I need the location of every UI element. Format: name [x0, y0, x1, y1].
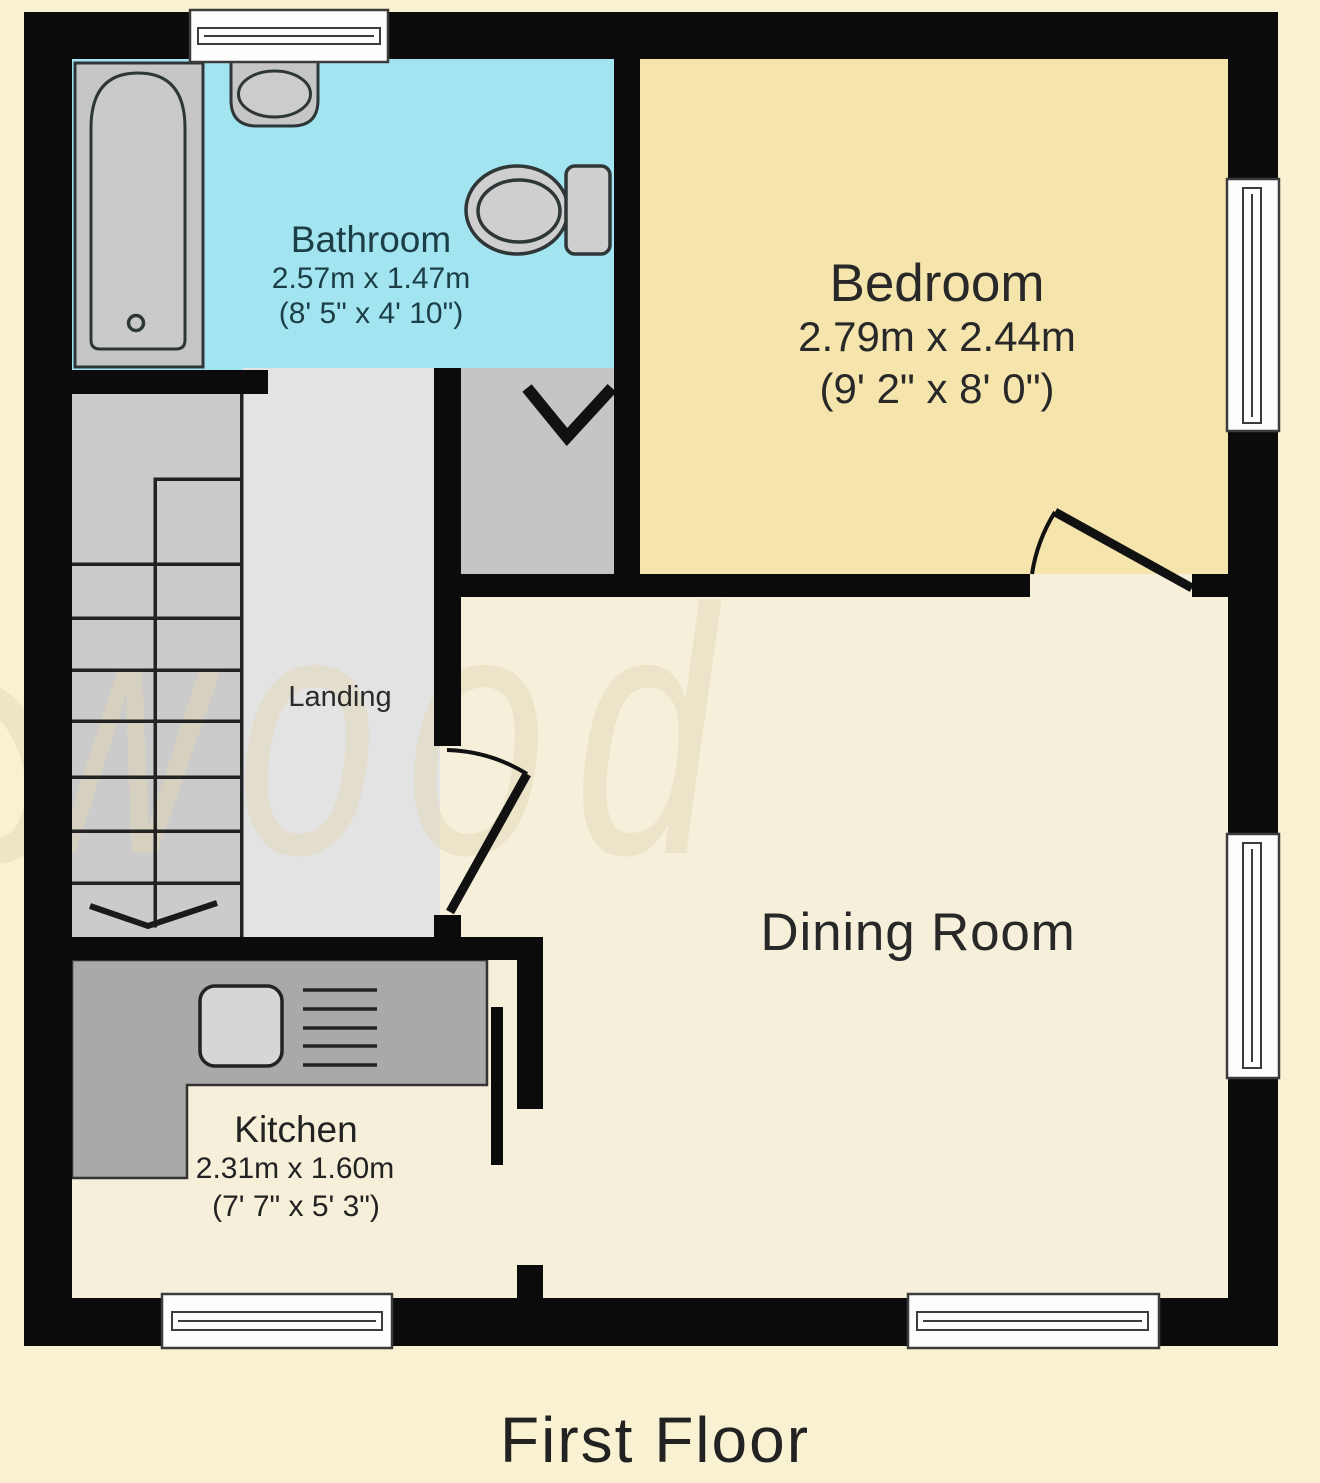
svg-text:2.79m x 2.44m: 2.79m x 2.44m — [798, 313, 1076, 360]
svg-text:Kitchen: Kitchen — [234, 1109, 357, 1150]
svg-text:(7' 7" x 5' 3"): (7' 7" x 5' 3") — [212, 1190, 380, 1223]
svg-text:Bedroom: Bedroom — [829, 254, 1044, 313]
svg-text:(8' 5" x 4' 10"): (8' 5" x 4' 10") — [279, 297, 464, 330]
svg-text:Bathroom: Bathroom — [291, 219, 451, 260]
svg-text:First Floor: First Floor — [500, 1404, 810, 1476]
svg-text:2.31m x 1.60m: 2.31m x 1.60m — [196, 1152, 394, 1185]
svg-text:2.57m x 1.47m: 2.57m x 1.47m — [272, 262, 470, 295]
svg-text:Dining Room: Dining Room — [760, 903, 1075, 962]
svg-text:Landing: Landing — [288, 681, 391, 713]
svg-text:(9' 2" x 8' 0"): (9' 2" x 8' 0") — [820, 365, 1055, 412]
